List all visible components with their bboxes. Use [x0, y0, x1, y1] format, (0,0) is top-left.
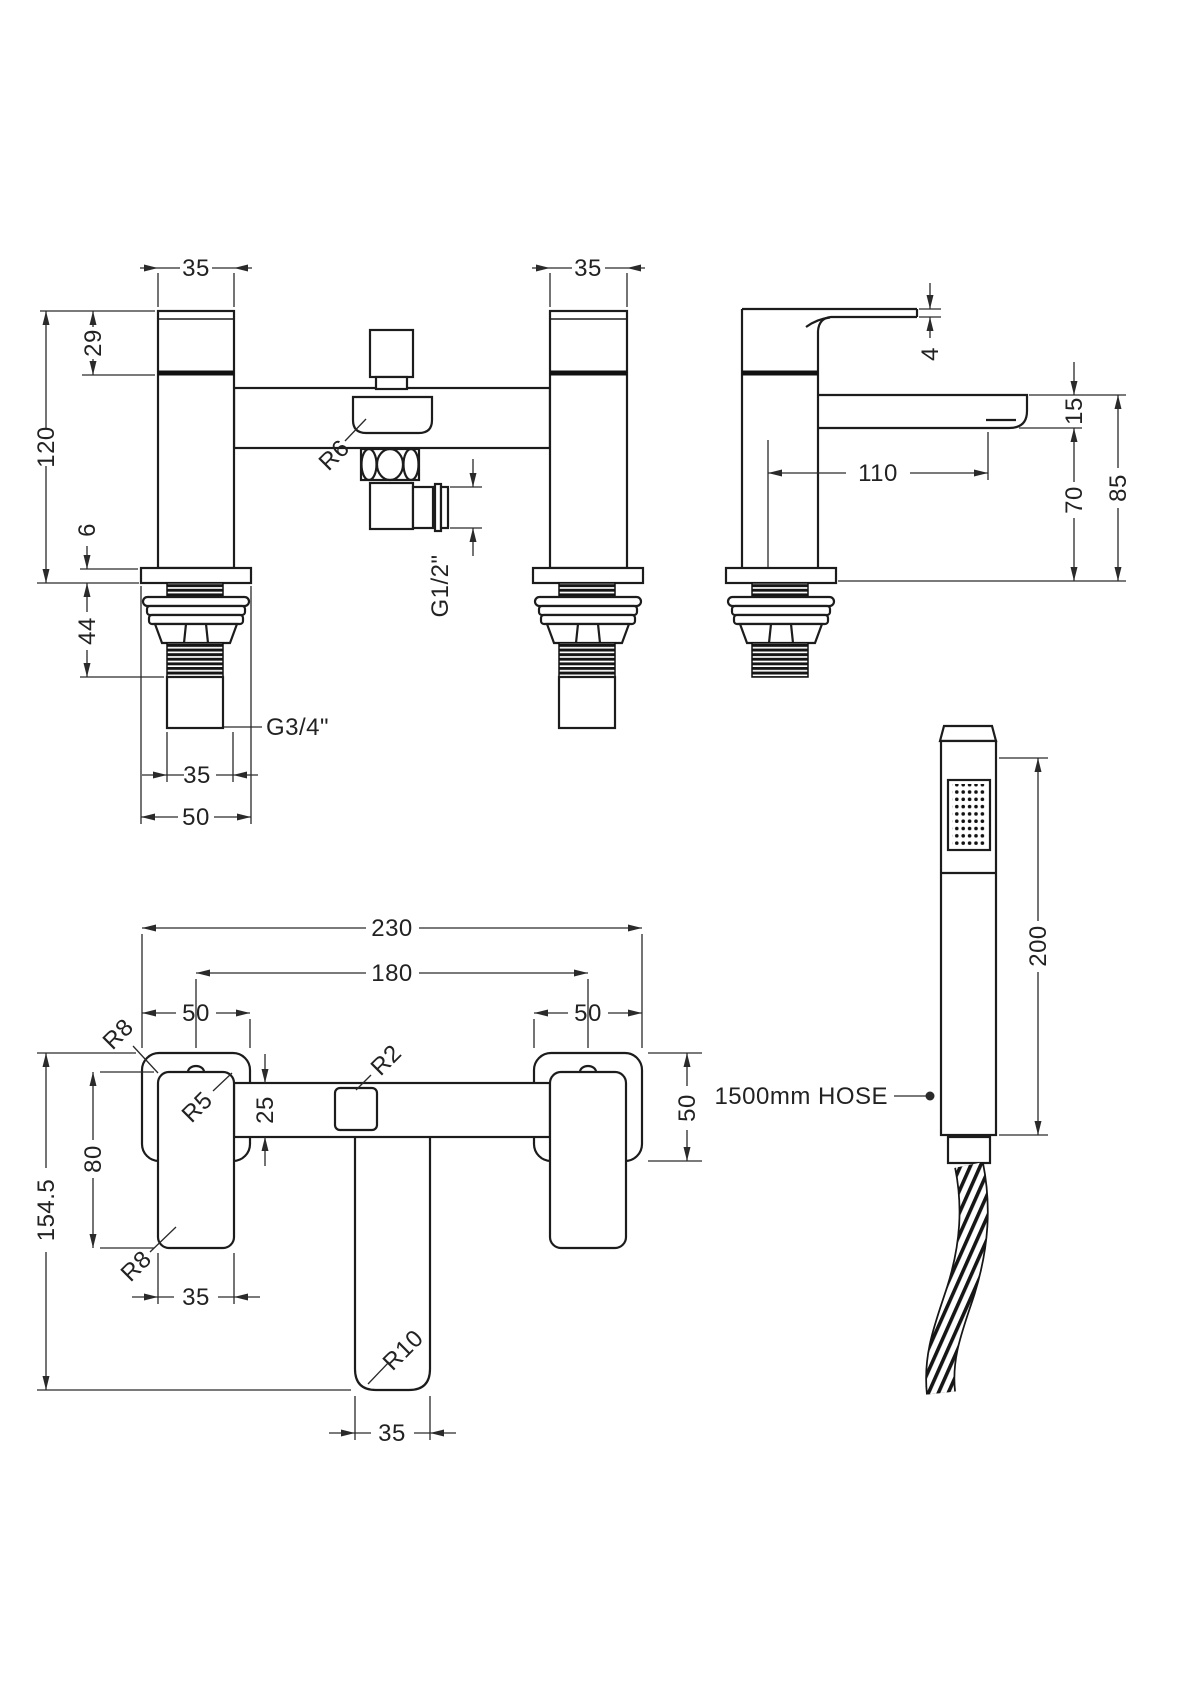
handset-label-hose: 1500mm HOSE: [714, 1083, 888, 1110]
hose: [940, 1165, 973, 1393]
bath-shower-mixer-drawing: 35 35 29 120 6 44 G3/4" 35 50 R6 G1/2": [0, 0, 1200, 1698]
top-view: 230 180 50 50 50 25 80 154.5 35 35 R8 R5…: [33, 915, 702, 1447]
top-label-radius-spout: R10: [378, 1325, 429, 1376]
handset-hose-nut: [948, 1137, 990, 1163]
front-dim-tail-width: 35: [183, 762, 211, 789]
side-dim-spout-clearance: 70: [1061, 486, 1088, 514]
front-left-tail: [167, 677, 223, 728]
top-dim-bar-depth: 25: [252, 1096, 279, 1124]
front-body: [141, 311, 643, 728]
side-extension-lines: [768, 309, 1126, 581]
side-dim-spout-depth: 15: [1061, 397, 1088, 425]
top-crossbar: [234, 1083, 550, 1137]
front-left-shank: [143, 583, 249, 677]
side-flange: [726, 568, 836, 583]
front-left-pillar: [158, 311, 234, 568]
technical-drawing-page: 35 35 29 120 6 44 G3/4" 35 50 R6 G1/2": [0, 0, 1200, 1698]
front-outlet-collar: [413, 487, 433, 528]
side-body: [726, 309, 1027, 677]
side-dim-overall-height: 85: [1105, 474, 1132, 502]
handset-cap: [940, 726, 996, 741]
side-dim-spout-reach: 110: [858, 460, 898, 487]
front-right-shank: [535, 583, 641, 677]
front-view: 35 35 29 120 6 44 G3/4" 35 50 R6 G1/2": [33, 255, 645, 831]
side-arrows: [768, 295, 1122, 581]
front-diverter-stem: [376, 377, 407, 389]
front-outlet-tip: [441, 487, 448, 528]
front-right-flange: [533, 568, 643, 583]
front-shower-outlet: [370, 483, 413, 529]
top-label-radius-diverter: R2: [366, 1040, 407, 1081]
front-diverter-knob: [370, 330, 413, 377]
front-dim-total-height: 120: [33, 426, 60, 468]
side-dimension-lines: [768, 283, 1118, 581]
handset-spray-nozzles: [952, 784, 986, 846]
side-labels: 4 15 70 85 110: [858, 347, 1132, 514]
front-dim-flange-width: 50: [182, 804, 210, 831]
handset-body: [940, 726, 996, 1393]
front-dim-handle-height: 29: [80, 329, 107, 357]
top-dim-overall-width: 230: [371, 915, 413, 942]
top-label-radius-base-top: R8: [98, 1014, 139, 1055]
side-spout: [818, 395, 1027, 428]
side-shank: [728, 583, 834, 677]
front-diverter-housing: [353, 397, 432, 433]
front-dim-shank-length: 44: [74, 617, 101, 645]
front-dim-base-thickness: 6: [74, 523, 101, 537]
top-dim-overall-depth: 154.5: [33, 1179, 60, 1242]
front-label-outlet-thread: G1/2": [427, 554, 454, 617]
handset-dim-length: 200: [1025, 925, 1052, 967]
handset-labels: 200 1500mm HOSE: [714, 925, 1052, 1110]
top-dim-handle-length: 80: [80, 1145, 107, 1173]
top-dim-base-width-left: 50: [182, 1000, 210, 1027]
top-dim-base-depth: 50: [674, 1094, 701, 1122]
side-dim-handle-thickness: 4: [917, 347, 944, 361]
top-body: [142, 1053, 642, 1390]
top-diverter-button: [335, 1088, 377, 1130]
front-label-inlet-thread: G3/4": [266, 714, 329, 741]
top-right-handle: [550, 1072, 626, 1248]
top-dim-handle-width: 35: [182, 1284, 210, 1311]
front-left-flange: [141, 568, 251, 583]
front-right-pillar: [550, 311, 627, 568]
front-dim-pillar-width-left: 35: [182, 255, 210, 282]
top-dim-base-width-right: 50: [574, 1000, 602, 1027]
handset-view: 200 1500mm HOSE: [714, 726, 1052, 1393]
top-dim-spout-width: 35: [378, 1420, 406, 1447]
hose-leader-dot: [926, 1092, 935, 1101]
front-right-tail: [559, 677, 615, 728]
front-labels: 35 35 29 120 6 44 G3/4" 35 50 R6 G1/2": [33, 255, 602, 831]
side-view: 4 15 70 85 110: [726, 283, 1132, 677]
front-extension-lines: [37, 273, 627, 824]
top-dim-centres: 180: [371, 960, 413, 987]
front-shower-swivel: [361, 449, 419, 480]
front-dim-pillar-width-right: 35: [574, 255, 602, 282]
